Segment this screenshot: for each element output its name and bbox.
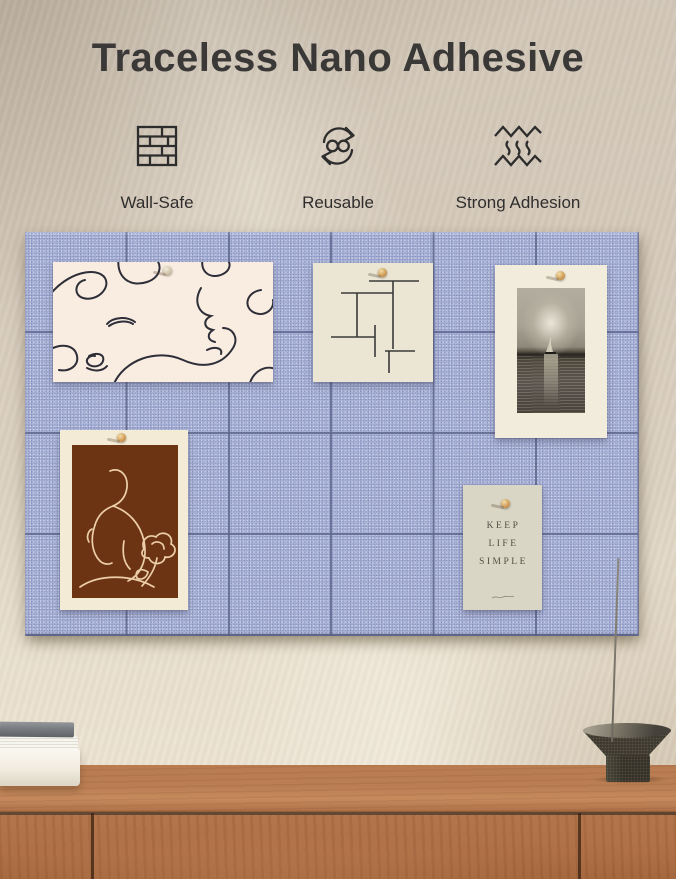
product-scene: Traceless Nano Adhesive Wall-Safe bbox=[0, 0, 676, 879]
feature-wall-safe: Wall-Safe bbox=[77, 122, 237, 213]
reusable-cycle-infinity-icon bbox=[313, 122, 363, 175]
feature-label-wall-safe: Wall-Safe bbox=[77, 193, 237, 213]
feature-reusable: Reusable bbox=[258, 122, 418, 213]
book-gray-cover bbox=[0, 722, 74, 738]
feature-strong-adhesion: Strong Adhesion bbox=[438, 122, 598, 213]
push-pin bbox=[501, 499, 510, 508]
quote-signature-scribble bbox=[463, 587, 542, 605]
quote-line-1: KEEP bbox=[463, 521, 542, 531]
incense-holder-rim bbox=[583, 723, 671, 738]
sideboard-countertop bbox=[0, 765, 676, 812]
pinned-art-abstract-faces bbox=[53, 262, 273, 382]
sideboard-seam-left bbox=[91, 813, 94, 879]
push-pin bbox=[556, 271, 565, 280]
strong-adhesion-zigzag-icon bbox=[489, 122, 547, 175]
sailboat-hull bbox=[545, 352, 556, 354]
book-white bbox=[0, 748, 80, 786]
quote-line-2: LIFE bbox=[463, 539, 542, 549]
figure-flower-panel bbox=[72, 445, 178, 598]
sideboard-seam-right bbox=[578, 813, 581, 879]
feature-label-strong-adhesion: Strong Adhesion bbox=[438, 193, 598, 213]
sea-texture bbox=[517, 356, 585, 413]
book-pages-edge bbox=[0, 736, 78, 749]
push-pin bbox=[378, 268, 387, 277]
incense-holder-base bbox=[606, 755, 650, 782]
page-title: Traceless Nano Adhesive bbox=[0, 36, 676, 81]
sailboat-photo-image bbox=[517, 288, 585, 413]
brick-wall-icon bbox=[132, 122, 182, 175]
pinned-photo-sailboat bbox=[495, 265, 607, 438]
pinned-art-geometric-lines bbox=[313, 263, 433, 382]
push-pin bbox=[163, 266, 172, 275]
pinned-art-figure-flower bbox=[60, 430, 188, 610]
quote-line-3: SIMPLE bbox=[463, 557, 542, 567]
sideboard-drawer-front bbox=[0, 815, 676, 879]
feature-label-reusable: Reusable bbox=[258, 193, 418, 213]
push-pin bbox=[117, 433, 126, 442]
